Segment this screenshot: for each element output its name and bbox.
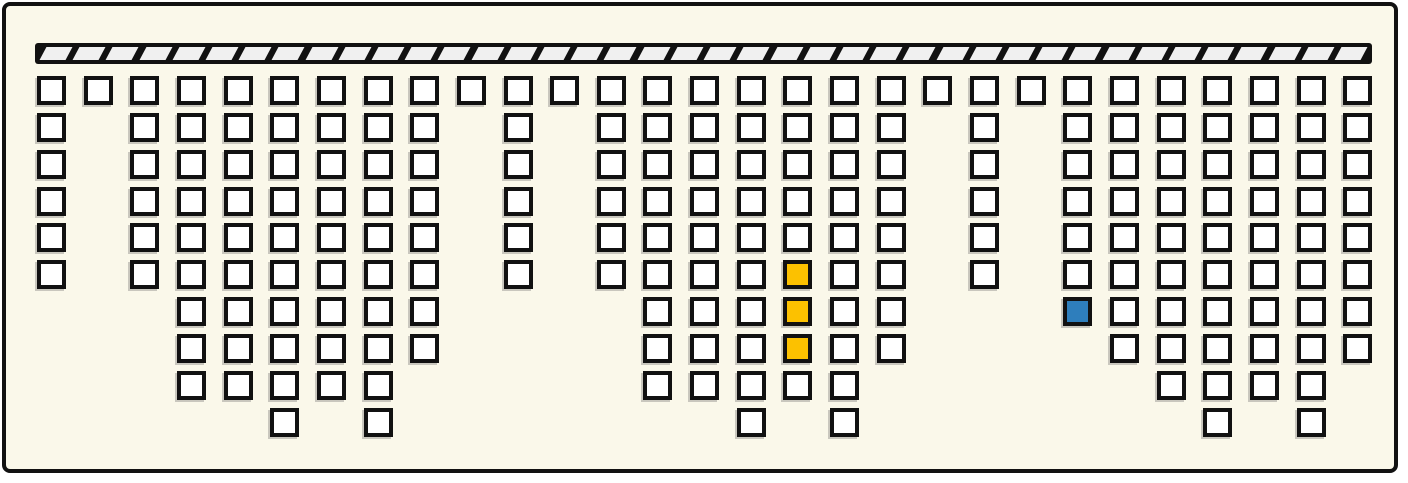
block-cell[interactable] xyxy=(410,150,439,179)
block-cell[interactable] xyxy=(37,113,66,142)
block-cell[interactable] xyxy=(270,371,299,400)
block-cell[interactable] xyxy=(550,76,579,105)
block-cell[interactable] xyxy=(830,371,859,400)
block-cell[interactable] xyxy=(270,150,299,179)
block-cell[interactable] xyxy=(1297,334,1326,363)
block-cell[interactable] xyxy=(1250,187,1279,216)
block-cell[interactable] xyxy=(737,334,766,363)
block-cell[interactable] xyxy=(1110,334,1139,363)
block-cell[interactable] xyxy=(130,187,159,216)
block-cell[interactable] xyxy=(224,223,253,252)
block-cell[interactable] xyxy=(690,371,719,400)
block-cell[interactable] xyxy=(1250,297,1279,326)
block-cell[interactable] xyxy=(317,371,346,400)
block-cell[interactable] xyxy=(1250,371,1279,400)
block-cell[interactable] xyxy=(877,150,906,179)
block-cell[interactable] xyxy=(737,223,766,252)
block-cell[interactable] xyxy=(317,297,346,326)
block-cell[interactable] xyxy=(597,76,626,105)
block-cell[interactable] xyxy=(1297,76,1326,105)
block-cell[interactable] xyxy=(597,223,626,252)
block-cell[interactable] xyxy=(1110,260,1139,289)
block-cell[interactable] xyxy=(410,334,439,363)
block-cell[interactable] xyxy=(317,150,346,179)
block-cell[interactable] xyxy=(643,297,672,326)
block-cell[interactable] xyxy=(224,150,253,179)
block-cell[interactable] xyxy=(364,76,393,105)
block-cell[interactable] xyxy=(177,297,206,326)
block-cell[interactable] xyxy=(690,297,719,326)
block-cell[interactable] xyxy=(830,113,859,142)
block-cell[interactable] xyxy=(783,187,812,216)
block-cell[interactable] xyxy=(364,187,393,216)
block-cell[interactable] xyxy=(1110,187,1139,216)
block-cell[interactable] xyxy=(1157,297,1186,326)
block-cell[interactable] xyxy=(690,76,719,105)
block-cell[interactable] xyxy=(364,113,393,142)
block-cell[interactable] xyxy=(317,76,346,105)
block-cell[interactable] xyxy=(643,371,672,400)
block-cell[interactable] xyxy=(830,334,859,363)
block-cell[interactable] xyxy=(1297,297,1326,326)
block-cell[interactable] xyxy=(410,187,439,216)
block-cell[interactable] xyxy=(830,408,859,437)
block-cell-yellow[interactable] xyxy=(783,297,812,326)
block-cell[interactable] xyxy=(457,76,486,105)
block-cell[interactable] xyxy=(643,334,672,363)
block-cell[interactable] xyxy=(737,113,766,142)
block-cell[interactable] xyxy=(1343,187,1372,216)
block-cell[interactable] xyxy=(1063,113,1092,142)
block-cell[interactable] xyxy=(877,187,906,216)
block-cell[interactable] xyxy=(364,371,393,400)
block-cell[interactable] xyxy=(1297,187,1326,216)
block-cell-blue[interactable] xyxy=(1063,297,1092,326)
block-cell[interactable] xyxy=(1343,223,1372,252)
block-cell[interactable] xyxy=(737,297,766,326)
block-cell[interactable] xyxy=(364,260,393,289)
block-cell[interactable] xyxy=(1250,113,1279,142)
block-cell[interactable] xyxy=(270,260,299,289)
block-cell[interactable] xyxy=(597,187,626,216)
block-cell[interactable] xyxy=(830,76,859,105)
block-cell[interactable] xyxy=(970,76,999,105)
block-cell[interactable] xyxy=(270,113,299,142)
block-cell[interactable] xyxy=(830,187,859,216)
block-cell[interactable] xyxy=(1203,223,1232,252)
block-cell[interactable] xyxy=(270,334,299,363)
block-cell[interactable] xyxy=(1157,223,1186,252)
block-cell[interactable] xyxy=(37,223,66,252)
block-cell[interactable] xyxy=(970,187,999,216)
block-cell[interactable] xyxy=(597,150,626,179)
block-cell[interactable] xyxy=(1157,150,1186,179)
block-cell[interactable] xyxy=(1297,408,1326,437)
block-cell[interactable] xyxy=(504,223,533,252)
block-cell-yellow[interactable] xyxy=(783,260,812,289)
block-cell[interactable] xyxy=(1110,297,1139,326)
block-cell[interactable] xyxy=(37,187,66,216)
block-cell[interactable] xyxy=(690,260,719,289)
block-cell[interactable] xyxy=(364,297,393,326)
block-cell[interactable] xyxy=(1250,76,1279,105)
block-cell[interactable] xyxy=(270,408,299,437)
block-cell[interactable] xyxy=(1110,113,1139,142)
block-cell[interactable] xyxy=(504,260,533,289)
block-cell[interactable] xyxy=(177,371,206,400)
block-cell[interactable] xyxy=(1157,187,1186,216)
block-cell[interactable] xyxy=(504,76,533,105)
block-cell[interactable] xyxy=(830,150,859,179)
block-cell[interactable] xyxy=(1203,297,1232,326)
block-cell[interactable] xyxy=(84,76,113,105)
block-cell[interactable] xyxy=(970,223,999,252)
block-cell[interactable] xyxy=(364,408,393,437)
block-cell[interactable] xyxy=(130,260,159,289)
block-cell[interactable] xyxy=(37,76,66,105)
block-cell[interactable] xyxy=(270,187,299,216)
block-cell[interactable] xyxy=(410,260,439,289)
block-cell[interactable] xyxy=(1063,76,1092,105)
block-cell[interactable] xyxy=(643,76,672,105)
block-cell[interactable] xyxy=(970,113,999,142)
block-cell[interactable] xyxy=(1250,150,1279,179)
block-cell[interactable] xyxy=(737,260,766,289)
block-cell[interactable] xyxy=(364,223,393,252)
block-cell[interactable] xyxy=(1343,260,1372,289)
block-cell[interactable] xyxy=(410,297,439,326)
block-cell[interactable] xyxy=(877,260,906,289)
block-cell[interactable] xyxy=(597,260,626,289)
block-cell[interactable] xyxy=(1110,223,1139,252)
block-cell[interactable] xyxy=(224,260,253,289)
block-cell[interactable] xyxy=(224,76,253,105)
block-cell[interactable] xyxy=(1250,223,1279,252)
block-cell[interactable] xyxy=(1110,76,1139,105)
block-cell[interactable] xyxy=(783,150,812,179)
block-cell[interactable] xyxy=(830,223,859,252)
block-cell[interactable] xyxy=(737,150,766,179)
block-cell[interactable] xyxy=(737,76,766,105)
block-cell[interactable] xyxy=(783,76,812,105)
block-cell[interactable] xyxy=(1157,334,1186,363)
block-cell[interactable] xyxy=(643,260,672,289)
block-cell[interactable] xyxy=(877,76,906,105)
block-cell[interactable] xyxy=(877,223,906,252)
block-cell[interactable] xyxy=(737,408,766,437)
block-cell[interactable] xyxy=(830,297,859,326)
block-cell[interactable] xyxy=(1203,150,1232,179)
block-cell[interactable] xyxy=(643,187,672,216)
block-cell[interactable] xyxy=(504,113,533,142)
block-cell[interactable] xyxy=(783,371,812,400)
block-cell[interactable] xyxy=(317,187,346,216)
block-cell[interactable] xyxy=(1343,334,1372,363)
block-cell[interactable] xyxy=(1203,76,1232,105)
block-cell[interactable] xyxy=(877,334,906,363)
block-cell[interactable] xyxy=(224,371,253,400)
block-cell[interactable] xyxy=(130,150,159,179)
block-cell[interactable] xyxy=(1157,76,1186,105)
block-cell[interactable] xyxy=(690,223,719,252)
block-cell[interactable] xyxy=(1063,187,1092,216)
block-cell[interactable] xyxy=(410,113,439,142)
block-cell[interactable] xyxy=(783,113,812,142)
block-cell[interactable] xyxy=(1203,260,1232,289)
block-cell[interactable] xyxy=(130,76,159,105)
block-cell[interactable] xyxy=(1157,260,1186,289)
block-cell[interactable] xyxy=(1343,113,1372,142)
block-cell[interactable] xyxy=(1343,150,1372,179)
block-cell[interactable] xyxy=(317,113,346,142)
block-cell[interactable] xyxy=(643,150,672,179)
block-cell[interactable] xyxy=(1203,371,1232,400)
block-cell[interactable] xyxy=(1063,223,1092,252)
block-cell[interactable] xyxy=(1297,260,1326,289)
block-cell[interactable] xyxy=(1297,223,1326,252)
block-cell[interactable] xyxy=(1203,187,1232,216)
block-cell[interactable] xyxy=(1063,260,1092,289)
block-cell[interactable] xyxy=(1250,260,1279,289)
block-cell[interactable] xyxy=(830,260,859,289)
block-cell[interactable] xyxy=(877,297,906,326)
block-cell[interactable] xyxy=(177,150,206,179)
block-cell[interactable] xyxy=(224,113,253,142)
block-cell[interactable] xyxy=(1297,113,1326,142)
block-cell[interactable] xyxy=(737,371,766,400)
block-cell[interactable] xyxy=(317,223,346,252)
block-cell[interactable] xyxy=(970,260,999,289)
block-cell[interactable] xyxy=(1343,297,1372,326)
block-cell[interactable] xyxy=(1250,334,1279,363)
block-cell[interactable] xyxy=(1297,371,1326,400)
block-cell[interactable] xyxy=(690,150,719,179)
block-cell[interactable] xyxy=(130,223,159,252)
block-cell[interactable] xyxy=(690,113,719,142)
block-cell[interactable] xyxy=(270,297,299,326)
block-cell[interactable] xyxy=(177,260,206,289)
block-cell[interactable] xyxy=(224,334,253,363)
block-cell[interactable] xyxy=(270,76,299,105)
block-cell[interactable] xyxy=(177,223,206,252)
block-cell[interactable] xyxy=(364,334,393,363)
block-cell[interactable] xyxy=(130,113,159,142)
block-cell[interactable] xyxy=(177,113,206,142)
block-cell[interactable] xyxy=(1063,150,1092,179)
block-cell[interactable] xyxy=(1203,334,1232,363)
block-cell[interactable] xyxy=(1110,150,1139,179)
block-grid xyxy=(0,0,1408,483)
block-cell-yellow[interactable] xyxy=(783,334,812,363)
block-cell[interactable] xyxy=(1203,113,1232,142)
block-cell[interactable] xyxy=(504,187,533,216)
block-cell[interactable] xyxy=(37,260,66,289)
block-cell[interactable] xyxy=(690,334,719,363)
block-cell[interactable] xyxy=(410,76,439,105)
block-cell[interactable] xyxy=(970,150,999,179)
block-cell[interactable] xyxy=(923,76,952,105)
block-cell[interactable] xyxy=(1017,76,1046,105)
block-cell[interactable] xyxy=(1157,113,1186,142)
block-cell[interactable] xyxy=(690,187,719,216)
block-cell[interactable] xyxy=(317,334,346,363)
block-cell[interactable] xyxy=(177,334,206,363)
block-cell[interactable] xyxy=(643,223,672,252)
block-cell[interactable] xyxy=(37,150,66,179)
block-cell[interactable] xyxy=(177,76,206,105)
block-cell[interactable] xyxy=(224,297,253,326)
block-cell[interactable] xyxy=(177,187,206,216)
block-cell[interactable] xyxy=(1157,371,1186,400)
block-cell[interactable] xyxy=(364,150,393,179)
block-cell[interactable] xyxy=(224,187,253,216)
block-cell[interactable] xyxy=(1203,408,1232,437)
block-cell[interactable] xyxy=(783,223,812,252)
block-cell[interactable] xyxy=(1343,76,1372,105)
block-cell[interactable] xyxy=(317,260,346,289)
block-cell[interactable] xyxy=(643,113,672,142)
block-cell[interactable] xyxy=(1297,150,1326,179)
block-cell[interactable] xyxy=(410,223,439,252)
block-cell[interactable] xyxy=(270,223,299,252)
block-cell[interactable] xyxy=(737,187,766,216)
block-cell[interactable] xyxy=(597,113,626,142)
block-cell[interactable] xyxy=(877,113,906,142)
block-cell[interactable] xyxy=(504,150,533,179)
